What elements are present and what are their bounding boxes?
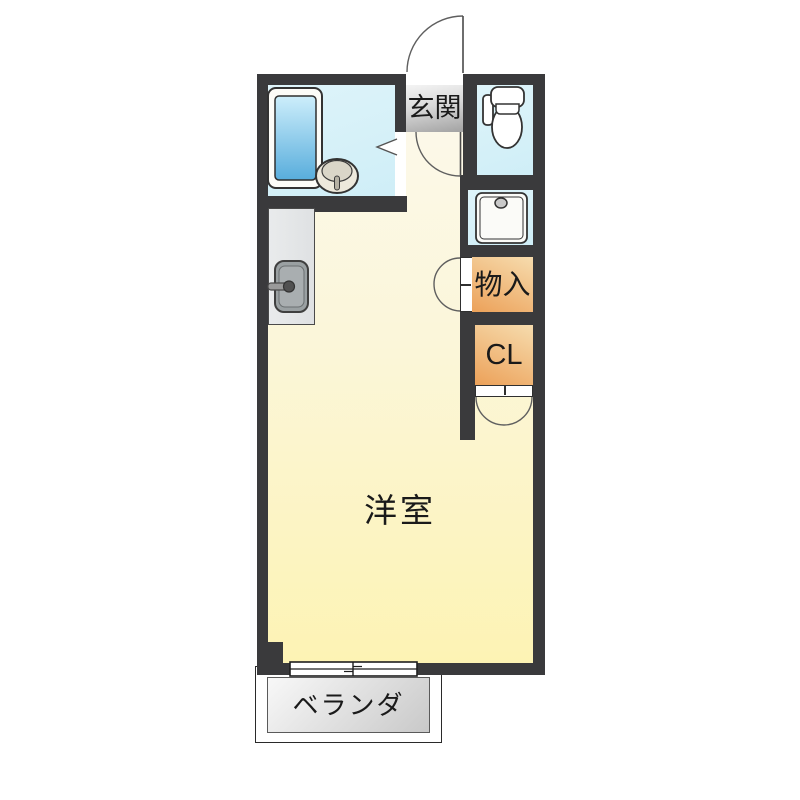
entrance-door-swing-icon bbox=[407, 16, 463, 73]
western-room-label-box: 洋室 bbox=[340, 490, 460, 530]
fixtures-overlay bbox=[0, 0, 800, 800]
hall-door-swing-icon bbox=[416, 132, 461, 176]
western-room-label: 洋室 bbox=[364, 494, 436, 527]
kitchen-sink-icon bbox=[268, 261, 308, 312]
washing-machine-pan-icon bbox=[476, 193, 527, 243]
bathroom-folding-door-icon bbox=[377, 139, 397, 155]
sliding-window-icon bbox=[290, 662, 417, 676]
closet-double-door-icon bbox=[476, 397, 532, 425]
toilet-icon bbox=[483, 87, 524, 148]
washbasin-icon bbox=[316, 159, 358, 193]
storage-double-door-icon bbox=[434, 258, 460, 311]
bathtub-icon bbox=[268, 88, 322, 188]
floor-plan: ベランダ 玄関 物入 CL bbox=[0, 0, 800, 800]
